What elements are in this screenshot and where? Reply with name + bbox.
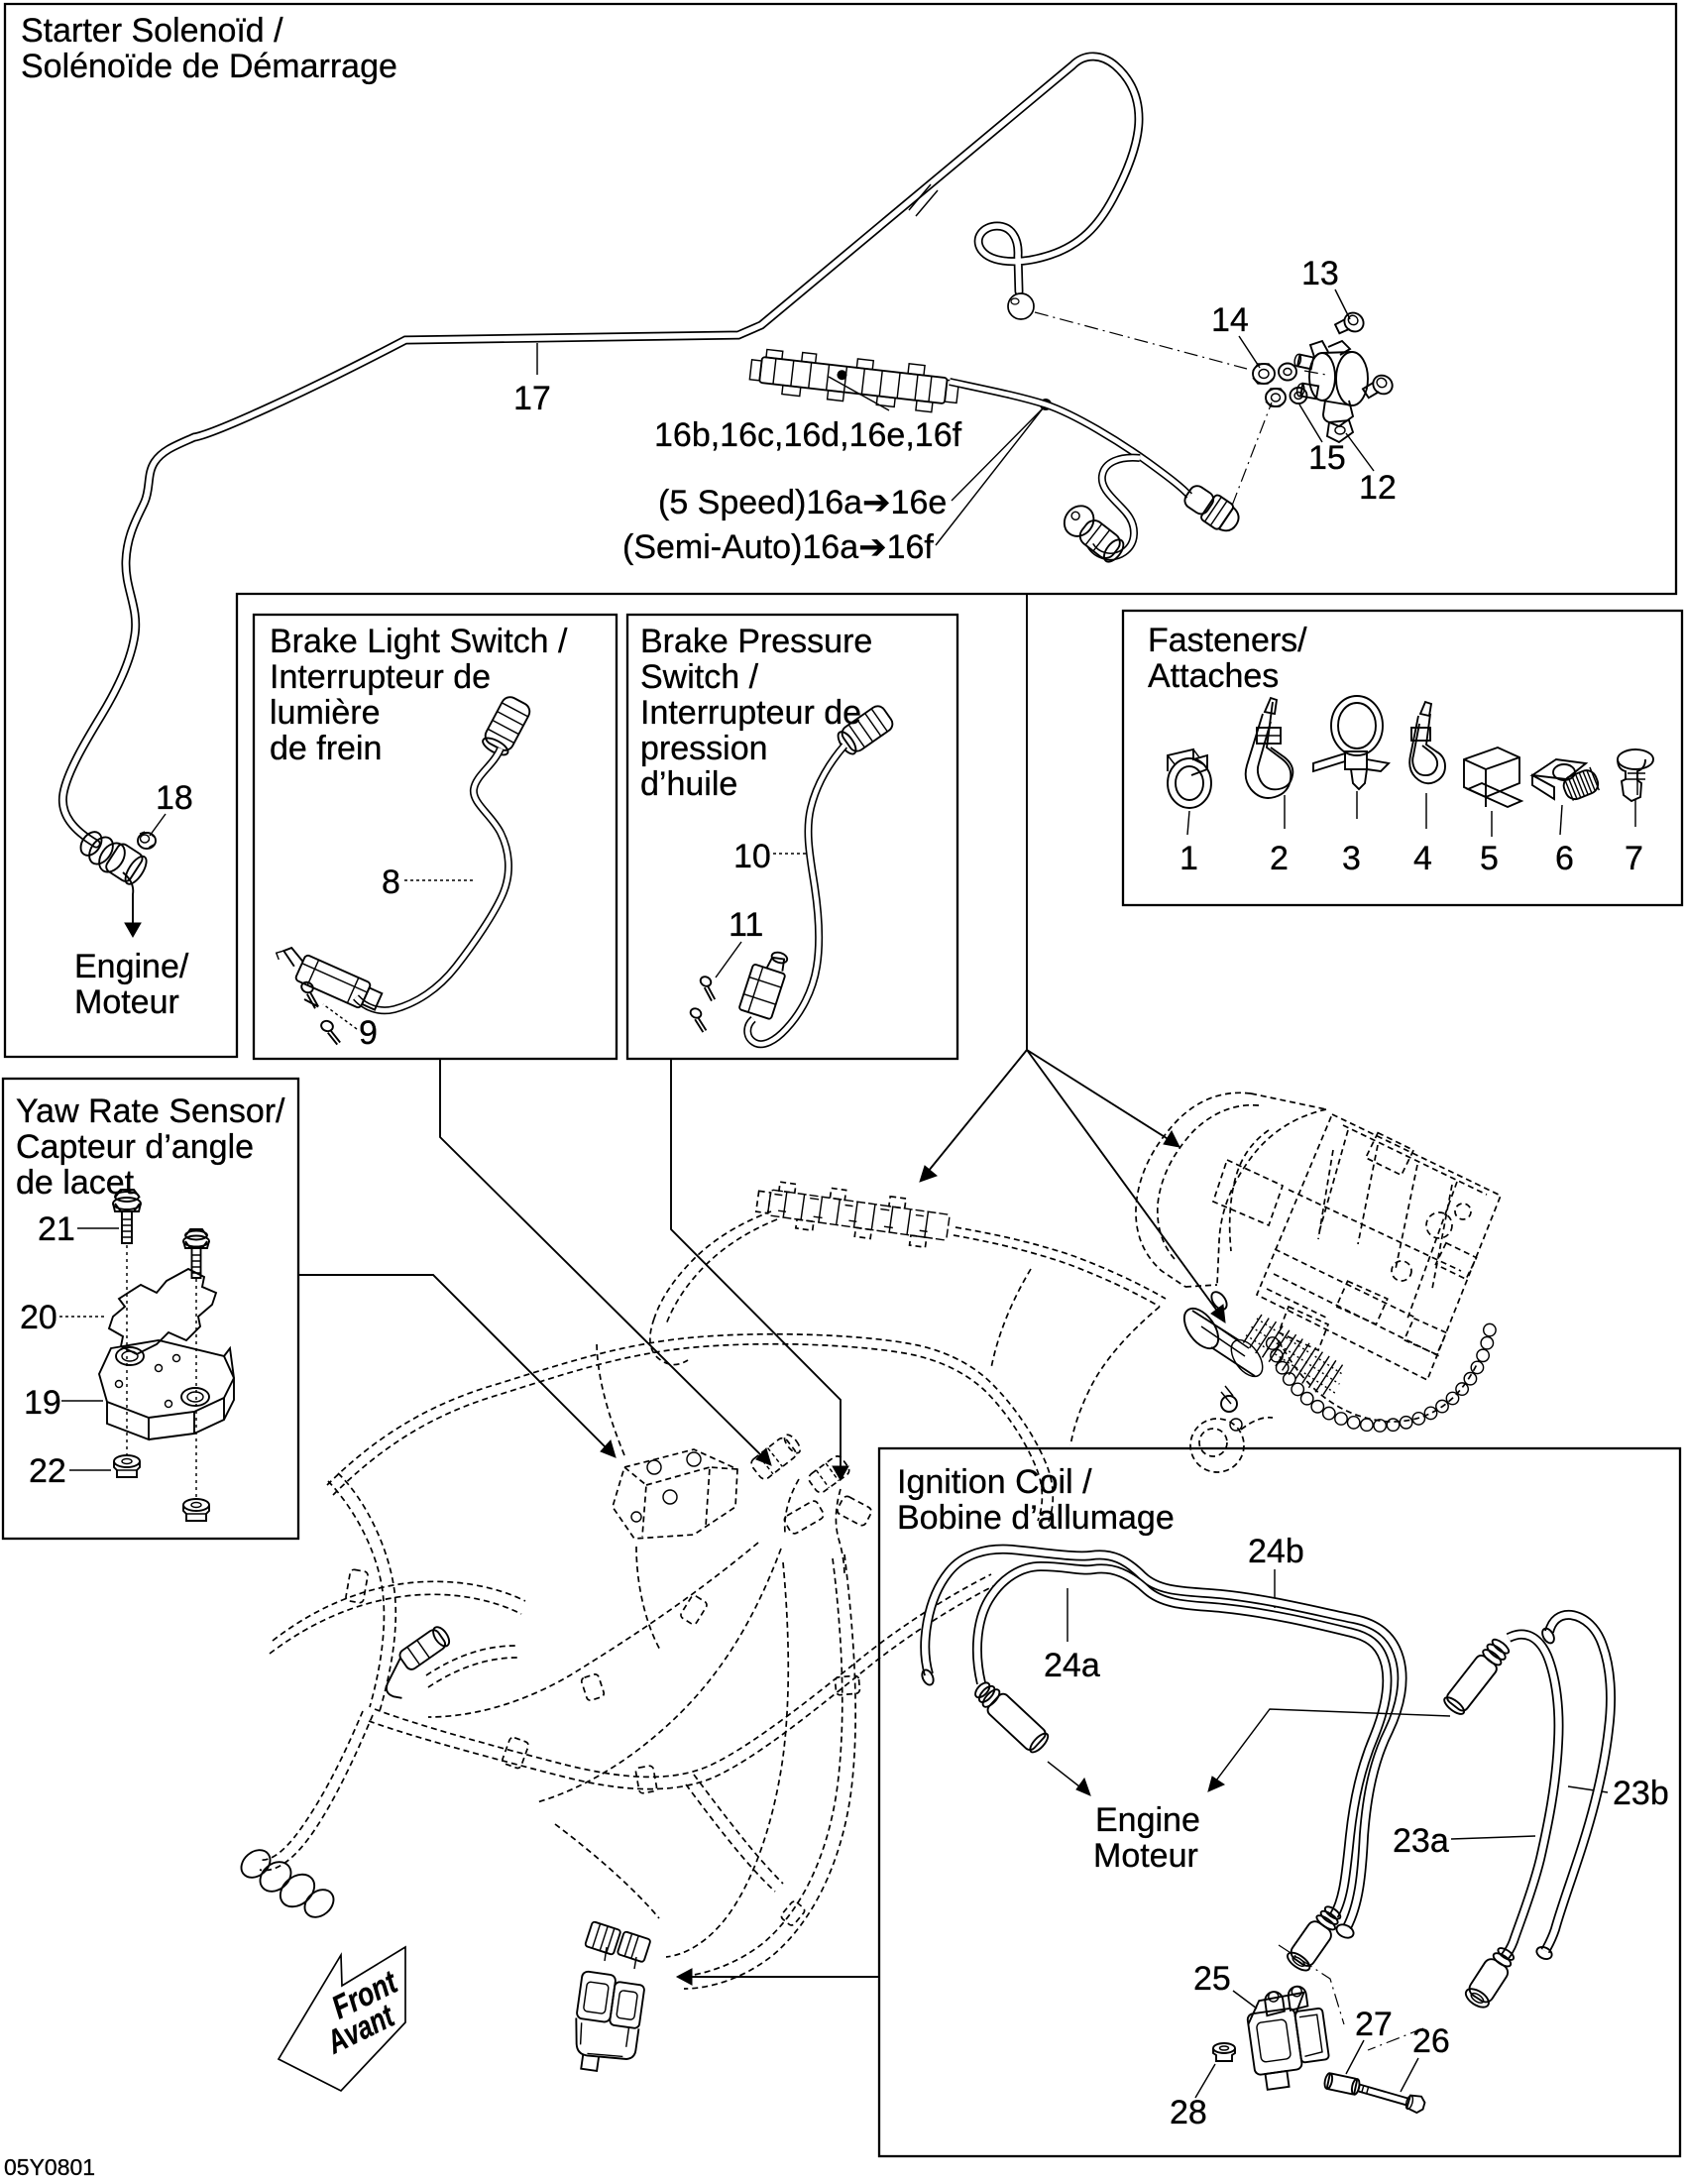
svg-text:Yaw Rate Sensor/: Yaw Rate Sensor/ bbox=[16, 1092, 285, 1130]
svg-text:15: 15 bbox=[1308, 439, 1346, 477]
svg-text:19: 19 bbox=[24, 1384, 61, 1422]
svg-text:16b,16c,16d,16e,16f: 16b,16c,16d,16e,16f bbox=[654, 416, 962, 454]
svg-text:8: 8 bbox=[382, 863, 400, 901]
svg-text:20: 20 bbox=[20, 1299, 57, 1336]
svg-text:Engine/: Engine/ bbox=[74, 948, 189, 985]
svg-text:(Semi-Auto)16a➔16f: (Semi-Auto)16a➔16f bbox=[622, 528, 934, 566]
svg-text:3: 3 bbox=[1342, 840, 1361, 877]
svg-text:de frein: de frein bbox=[270, 730, 382, 767]
svg-text:Brake Light Switch /: Brake Light Switch / bbox=[270, 623, 568, 660]
svg-text:Solénoïde de Démarrage: Solénoïde de Démarrage bbox=[21, 48, 397, 85]
svg-text:pression: pression bbox=[640, 730, 768, 767]
svg-text:9: 9 bbox=[359, 1014, 378, 1052]
svg-text:26: 26 bbox=[1412, 2022, 1450, 2060]
svg-text:22: 22 bbox=[29, 1452, 66, 1490]
svg-text:27: 27 bbox=[1355, 2006, 1393, 2043]
svg-text:lumière: lumière bbox=[270, 694, 380, 732]
svg-text:Bobine d’allumage: Bobine d’allumage bbox=[897, 1499, 1175, 1537]
svg-text:7: 7 bbox=[1625, 840, 1643, 877]
svg-text:Attaches: Attaches bbox=[1148, 657, 1279, 695]
svg-text:21: 21 bbox=[38, 1210, 75, 1248]
svg-text:14: 14 bbox=[1211, 301, 1249, 339]
svg-text:Moteur: Moteur bbox=[1093, 1837, 1198, 1875]
svg-text:13: 13 bbox=[1301, 255, 1339, 292]
svg-text:5: 5 bbox=[1480, 840, 1499, 877]
svg-text:11: 11 bbox=[729, 906, 763, 944]
svg-text:10: 10 bbox=[733, 838, 771, 875]
svg-text:12: 12 bbox=[1359, 469, 1397, 507]
svg-text:Brake Pressure: Brake Pressure bbox=[640, 623, 872, 660]
svg-text:Starter Solenoïd /: Starter Solenoïd / bbox=[21, 12, 283, 50]
svg-text:18: 18 bbox=[156, 779, 193, 817]
svg-text:17: 17 bbox=[513, 380, 551, 417]
svg-text:24a: 24a bbox=[1044, 1647, 1100, 1684]
svg-text:25: 25 bbox=[1193, 1960, 1231, 1998]
svg-text:05Y0801: 05Y0801 bbox=[4, 2154, 95, 2180]
svg-text:Capteur d’angle: Capteur d’angle bbox=[16, 1128, 254, 1166]
svg-text:28: 28 bbox=[1170, 2094, 1207, 2131]
svg-text:24b: 24b bbox=[1248, 1533, 1304, 1570]
svg-text:Interrupteur de: Interrupteur de bbox=[640, 694, 861, 732]
svg-text:Engine: Engine bbox=[1095, 1801, 1200, 1839]
svg-text:Ignition Coil /: Ignition Coil / bbox=[897, 1463, 1092, 1501]
svg-text:2: 2 bbox=[1270, 840, 1289, 877]
svg-text:Interrupteur de: Interrupteur de bbox=[270, 658, 491, 696]
svg-text:Moteur: Moteur bbox=[74, 983, 179, 1021]
svg-text:6: 6 bbox=[1555, 840, 1574, 877]
svg-text:d’huile: d’huile bbox=[640, 765, 737, 803]
svg-text:4: 4 bbox=[1413, 840, 1432, 877]
svg-text:1: 1 bbox=[1179, 840, 1198, 877]
svg-text:23a: 23a bbox=[1393, 1822, 1449, 1860]
svg-text:(5 Speed)16a➔16e: (5 Speed)16a➔16e bbox=[658, 484, 947, 521]
svg-text:23b: 23b bbox=[1613, 1775, 1669, 1812]
svg-text:Switch /: Switch / bbox=[640, 658, 759, 696]
svg-text:Fasteners/: Fasteners/ bbox=[1148, 622, 1307, 659]
